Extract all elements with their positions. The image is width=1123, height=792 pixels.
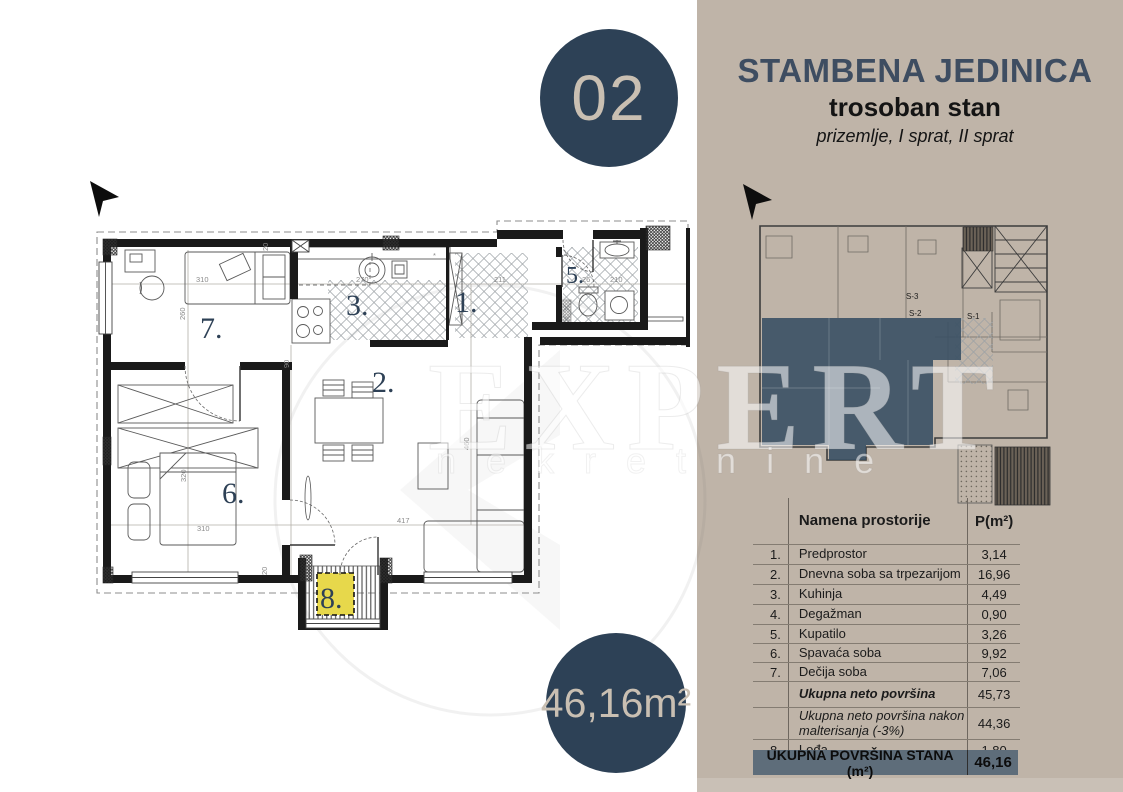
table-row: 4. Degažman 0,90 [753,604,1020,624]
svg-text:210: 210 [610,275,623,284]
room-area-table: Namena prostorije P(m²) 1. Predprostor 3… [753,498,1020,760]
svg-text:417: 417 [397,516,410,525]
total-area-number: 46,16 [967,750,1018,775]
svg-text:270: 270 [356,275,369,284]
table-row: 2. Dnevna soba sa trpezarijom 16,96 [753,564,1020,584]
table-header-row: Namena prostorije P(m²) [753,498,1020,544]
table-row: 5. Kupatilo 3,26 [753,624,1020,643]
table-row: 3. Kuhinja 4,49 [753,584,1020,604]
svg-text:*: * [433,251,436,260]
mini-north-arrow-icon [743,184,772,220]
svg-text:310: 310 [196,275,209,284]
svg-text:90: 90 [282,360,291,368]
table-row-net-after-plaster: Ukupna neto površina nakon malterisanja … [753,707,1020,739]
column-header-area: P(m²) [967,498,1020,544]
unit-number: 02 [571,61,646,135]
room-number-2: 2. [372,366,395,399]
table-row: 6. Spavaća soba 9,92 [753,643,1020,662]
room-number-1: 1. [455,286,478,319]
room-number-3: 3. [346,289,369,322]
unit-label-s2: S-2 [909,309,922,318]
total-area-value: 46,16m² [541,680,691,727]
svg-text:26: 26 [582,275,590,284]
total-area-label: UKUPNA POVRŠINA STANA (m²) [753,747,967,779]
svg-text:460: 460 [462,437,471,450]
table-row-net-total: Ukupna neto površina 45,73 [753,681,1020,707]
svg-text:211: 211 [494,275,506,284]
svg-text:310: 310 [197,524,210,533]
total-area-bar: UKUPNA POVRŠINA STANA (m²) 46,16 [753,750,1018,775]
svg-text:320: 320 [179,469,188,482]
unit-label-s1: S-1 [967,312,980,321]
apartment-type: trosoban stan [707,92,1123,123]
table-row: 7. Dečija soba 7,06 [753,662,1020,681]
total-area-badge: 46,16m² [546,633,686,773]
room-number-7: 7. [200,312,223,345]
panel-header: STAMBENA JEDINICA trosoban stan prizemlj… [707,52,1123,147]
loggia [306,566,380,619]
column-header-name: Namena prostorije [788,498,967,544]
page-title: STAMBENA JEDINICA [707,52,1123,90]
brochure-page: 7. 3. 1. 5. 2. 6. 8. 260 310 270 211 26 … [0,0,1123,792]
svg-text:260: 260 [178,307,187,320]
svg-text:20: 20 [261,243,270,251]
north-arrow-icon [90,181,119,217]
room-number-6: 6. [222,477,245,510]
svg-text:20: 20 [260,567,269,575]
unit-label-s3: S-3 [906,292,919,301]
mini-site-plan: S-3 S-2 S-1 [743,184,1050,505]
table-row: 1. Predprostor 3,14 [753,544,1020,564]
highlighted-unit-02 [762,318,961,460]
floors-note: prizemlje, I sprat, II sprat [707,126,1123,147]
svg-text:*: * [566,250,569,259]
unit-number-badge: 02 [540,29,678,167]
room-number-8: 8. [320,582,343,615]
